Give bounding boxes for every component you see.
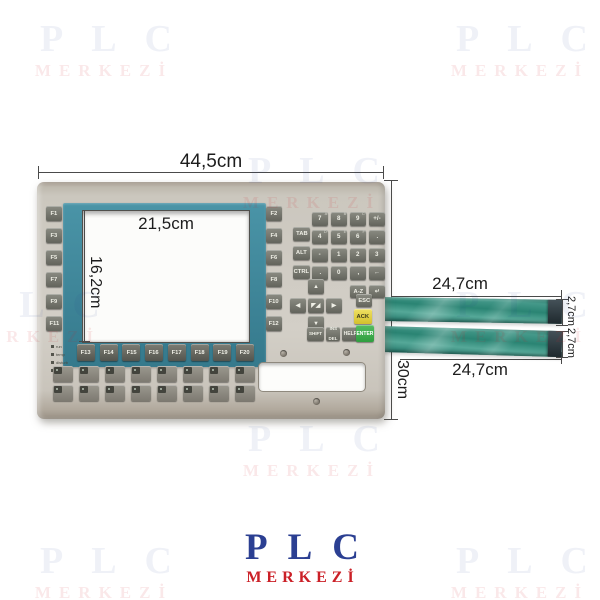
- numeric-keypad: A 7 B 8 C 9 +/- D 4 E 5 F 6 .: [312, 212, 385, 280]
- mounting-hole: [313, 398, 320, 405]
- led-tab-icon: [236, 386, 244, 393]
- function-key[interactable]: F16: [145, 344, 163, 361]
- led-icon: [160, 369, 162, 371]
- soft-key[interactable]: [209, 366, 229, 382]
- led-icon: [186, 369, 188, 371]
- led-tab-icon: [236, 367, 244, 374]
- dim-tick: [384, 419, 398, 420]
- dim-label-bottom-cable-width: 2,7cm: [565, 328, 577, 358]
- arrow-center-key[interactable]: ◤◢: [308, 298, 324, 313]
- soft-key[interactable]: [53, 366, 73, 382]
- dim-tick: [384, 180, 398, 181]
- numpad-key[interactable]: ,: [350, 266, 366, 280]
- led-icon: [212, 388, 214, 390]
- function-key[interactable]: F12: [266, 316, 282, 331]
- led-icon: [56, 369, 58, 371]
- function-key[interactable]: F6: [266, 250, 282, 265]
- led-tab-icon: [80, 367, 88, 374]
- function-key[interactable]: F8: [266, 272, 282, 287]
- led-tab-icon: [210, 386, 218, 393]
- dim-label-top-cable-width: 2,7cm: [565, 296, 577, 326]
- numpad-key[interactable]: ←: [369, 266, 385, 280]
- ins-del-key[interactable]: INS DEL: [326, 327, 340, 341]
- led-icon: [51, 345, 54, 348]
- numpad-key[interactable]: F 6: [350, 230, 366, 244]
- watermark: PLCMERKEZİ: [428, 18, 600, 82]
- watermark: PLCMERKEZİ: [220, 418, 396, 482]
- arrow-left-key[interactable]: ◀: [290, 298, 306, 313]
- led-legend-item: run: [51, 344, 86, 349]
- numpad-key[interactable]: A 7: [312, 212, 328, 226]
- dim-line: [562, 331, 563, 358]
- soft-key[interactable]: [79, 385, 99, 401]
- soft-key[interactable]: [157, 366, 177, 382]
- led-tab-icon: [184, 386, 192, 393]
- dim-label-display-height: 16,2cm: [86, 256, 104, 308]
- numpad-key[interactable]: 2: [350, 248, 366, 262]
- function-key[interactable]: F3: [46, 228, 62, 243]
- arrow-up-icon: ▲: [313, 284, 319, 290]
- numpad-key[interactable]: .: [369, 230, 385, 244]
- led-tab-icon: [132, 386, 140, 393]
- led-tab-icon: [184, 367, 192, 374]
- plc-merkezi-logo: PLC MERKEZİ: [225, 528, 375, 588]
- led-tab-icon: [106, 367, 114, 374]
- led-icon: [51, 353, 54, 356]
- numpad-key[interactable]: D 4: [312, 230, 328, 244]
- function-key[interactable]: F17: [168, 344, 186, 361]
- numpad-key[interactable]: 1: [331, 248, 347, 262]
- led-icon: [51, 361, 54, 364]
- function-key[interactable]: F4: [266, 228, 282, 243]
- led-legend-item: disturb: [51, 360, 86, 365]
- logo-line1: PLC: [225, 528, 375, 568]
- dim-label-top-cable-length: 24,7cm: [385, 274, 535, 294]
- left-function-key-column: F1F3F5F7F9F11: [46, 206, 62, 331]
- modifier-key-column: TABALTCTRL: [293, 227, 310, 279]
- arrow-left-icon: ◀: [296, 303, 300, 309]
- function-key[interactable]: F19: [213, 344, 231, 361]
- function-key[interactable]: F10: [266, 294, 282, 309]
- mounting-hole: [343, 349, 350, 356]
- function-key[interactable]: F5: [46, 250, 62, 265]
- soft-key-row-2: [53, 385, 255, 401]
- top-cable-connector: [548, 299, 562, 324]
- modifier-key[interactable]: TAB: [293, 227, 310, 241]
- arrow-up-key[interactable]: ▲: [308, 279, 324, 294]
- mounting-hole: [280, 350, 287, 357]
- esc-key[interactable]: ESC: [356, 294, 372, 307]
- logo-line2: MERKEZİ: [225, 568, 375, 588]
- function-key[interactable]: F2: [266, 206, 282, 221]
- led-icon: [134, 388, 136, 390]
- function-key[interactable]: F1: [46, 206, 62, 221]
- led-tab-icon: [158, 386, 166, 393]
- led-tab-icon: [158, 367, 166, 374]
- disk-slot-cutout: [258, 362, 366, 392]
- modifier-key[interactable]: CTRL: [293, 265, 310, 279]
- ack-key[interactable]: ACK: [354, 309, 372, 324]
- led-tab-icon: [106, 386, 114, 393]
- led-icon: [212, 369, 214, 371]
- function-key[interactable]: F7: [46, 272, 62, 287]
- watermark: PLCMERKEZİ: [12, 18, 188, 82]
- soft-key-row-1: [53, 366, 255, 382]
- diagonal-arrows-icon: ◤◢: [312, 303, 321, 309]
- led-icon: [160, 388, 162, 390]
- soft-key[interactable]: [235, 385, 255, 401]
- bottom-cable-connector: [548, 330, 563, 357]
- soft-key[interactable]: [183, 366, 203, 382]
- numpad-key[interactable]: B 8: [331, 212, 347, 226]
- soft-key[interactable]: [105, 385, 125, 401]
- function-key[interactable]: F11: [46, 316, 62, 331]
- led-tab-icon: [132, 367, 140, 374]
- numpad-key[interactable]: -: [312, 248, 328, 262]
- dim-label-display-width: 21,5cm: [84, 214, 248, 234]
- led-icon: [238, 388, 240, 390]
- numpad-key[interactable]: 3: [369, 248, 385, 262]
- modifier-key[interactable]: ALT: [293, 246, 310, 260]
- led-icon: [186, 388, 188, 390]
- dim-line: [84, 210, 85, 341]
- dim-tick: [79, 341, 90, 342]
- soft-key[interactable]: [105, 366, 125, 382]
- led-tab-icon: [54, 386, 62, 393]
- dim-line: [562, 299, 563, 326]
- watermark: PLCMERKEZİ: [12, 540, 188, 600]
- arrow-down-icon: ▼: [313, 321, 319, 327]
- soft-key[interactable]: [53, 385, 73, 401]
- function-key[interactable]: F15: [122, 344, 140, 361]
- led-icon: [82, 388, 84, 390]
- arrow-right-icon: ▶: [332, 303, 336, 309]
- soft-key[interactable]: [131, 366, 151, 382]
- numpad-key[interactable]: 0: [331, 266, 347, 280]
- numpad-key[interactable]: C 9: [350, 212, 366, 226]
- bottom-ribbon-cable: [380, 326, 563, 357]
- soft-key[interactable]: [131, 385, 151, 401]
- bottom-function-key-strip: F13F14F15F16F17F18F19F20: [77, 344, 254, 361]
- numpad-key[interactable]: E 5: [331, 230, 347, 244]
- led-icon: [238, 369, 240, 371]
- led-tab-icon: [80, 386, 88, 393]
- led-icon: [82, 369, 84, 371]
- enter-key[interactable]: ENTER: [356, 325, 374, 342]
- led-icon: [108, 388, 110, 390]
- function-key[interactable]: F18: [191, 344, 209, 361]
- function-key[interactable]: F14: [100, 344, 118, 361]
- soft-key[interactable]: [235, 366, 255, 382]
- function-key[interactable]: F20: [236, 344, 254, 361]
- led-icon: [134, 369, 136, 371]
- led-tab-icon: [210, 367, 218, 374]
- led-icon: [56, 388, 58, 390]
- led-legend-item: temp: [51, 352, 86, 357]
- watermark: PLCMERKEZİ: [428, 540, 600, 600]
- led-icon: [108, 369, 110, 371]
- led-tab-icon: [54, 367, 62, 374]
- function-key[interactable]: F9: [46, 294, 62, 309]
- numpad-key[interactable]: .: [312, 266, 328, 280]
- soft-key[interactable]: [79, 366, 99, 382]
- dim-label-overall-width: 44,5cm: [38, 151, 384, 173]
- soft-key[interactable]: [157, 385, 177, 401]
- numpad-key[interactable]: +/-: [369, 212, 385, 226]
- product-photo-stage: 44,5cm 21,5cm 16,2cm 30cm 24,7cm 2,7cm 2…: [0, 0, 600, 600]
- soft-key[interactable]: [209, 385, 229, 401]
- right-function-key-column: F2F4F6F8F10F12: [266, 206, 282, 331]
- soft-key[interactable]: [183, 385, 203, 401]
- top-ribbon-cable: [380, 297, 562, 324]
- shift-key[interactable]: SHIFT: [307, 327, 324, 341]
- arrow-right-key[interactable]: ▶: [326, 298, 342, 313]
- dim-label-bottom-cable-length: 24,7cm: [405, 360, 555, 380]
